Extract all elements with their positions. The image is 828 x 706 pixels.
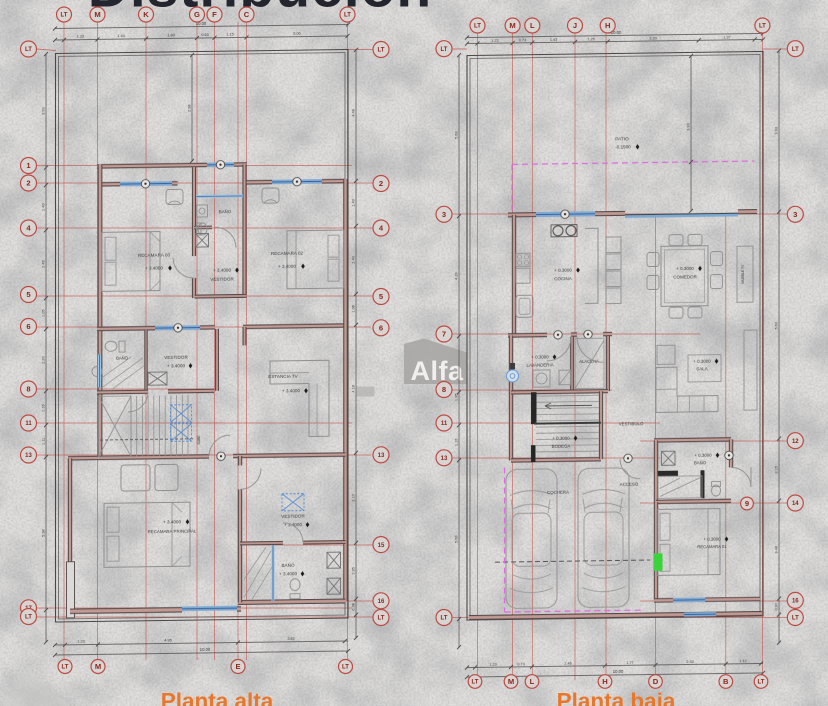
svg-text:SALA: SALA xyxy=(696,366,708,371)
svg-text:+ 3.4000: + 3.4000 xyxy=(163,519,181,524)
svg-text:1.23: 1.23 xyxy=(491,38,498,42)
svg-text:Planta baja: Planta baja xyxy=(557,689,676,706)
svg-text:1.12: 1.12 xyxy=(739,659,746,663)
svg-text:H: H xyxy=(605,21,610,30)
svg-text:2.40: 2.40 xyxy=(352,256,356,263)
svg-text:0.73: 0.73 xyxy=(519,38,526,42)
svg-text:1.40: 1.40 xyxy=(352,199,356,206)
svg-text:1.23: 1.23 xyxy=(77,640,84,644)
svg-text:4.20: 4.20 xyxy=(455,272,459,279)
svg-text:LT: LT xyxy=(792,616,799,622)
svg-text:5.38: 5.38 xyxy=(42,529,46,536)
svg-text:2.15: 2.15 xyxy=(775,466,779,473)
svg-text:0.38: 0.38 xyxy=(352,603,356,610)
svg-text:M: M xyxy=(94,10,100,19)
svg-text:LT: LT xyxy=(472,680,479,686)
svg-text:+ 0.3000: + 0.3000 xyxy=(693,359,711,364)
svg-text:BAÑO: BAÑO xyxy=(694,460,707,465)
svg-text:ESTANCIA TV: ESTANCIA TV xyxy=(268,374,298,379)
svg-text:VESTIDOR: VESTIDOR xyxy=(281,514,305,519)
svg-text:+ 0.3000: + 0.3000 xyxy=(531,354,549,359)
svg-text:F: F xyxy=(212,10,217,19)
svg-text:BODEGA: BODEGA xyxy=(552,444,571,449)
svg-text:7: 7 xyxy=(442,330,446,339)
svg-text:3.93: 3.93 xyxy=(775,127,779,134)
svg-text:RECAMARA 01: RECAMARA 01 xyxy=(697,544,727,549)
svg-text:3.93: 3.93 xyxy=(42,107,46,114)
svg-text:LT: LT xyxy=(344,13,351,19)
svg-text:BAÑO: BAÑO xyxy=(219,209,232,214)
svg-text:B: B xyxy=(723,677,729,686)
svg-text:11: 11 xyxy=(25,421,32,427)
svg-text:1.43: 1.43 xyxy=(550,38,557,42)
svg-text:1.43: 1.43 xyxy=(117,34,124,38)
svg-text:VESTIDOR: VESTIDOR xyxy=(164,355,188,360)
svg-text:ACCESO: ACCESO xyxy=(620,482,639,487)
svg-text:LT: LT xyxy=(792,47,799,53)
svg-text:C: C xyxy=(244,10,250,19)
svg-text:9: 9 xyxy=(745,499,749,508)
svg-text:5.63: 5.63 xyxy=(455,131,459,138)
svg-text:3: 3 xyxy=(793,210,797,219)
svg-text:2.46: 2.46 xyxy=(564,661,571,665)
svg-text:+ 3.4000: + 3.4000 xyxy=(167,363,185,368)
svg-text:2.20: 2.20 xyxy=(42,356,46,363)
svg-text:LT: LT xyxy=(378,48,385,54)
svg-text:1.22: 1.22 xyxy=(77,35,84,39)
svg-text:+ 0.3000: + 0.3000 xyxy=(552,436,570,441)
svg-text:15: 15 xyxy=(378,543,385,549)
svg-text:5.60: 5.60 xyxy=(775,322,779,329)
svg-text:8: 8 xyxy=(442,385,446,394)
svg-text:3.10: 3.10 xyxy=(352,494,356,501)
svg-text:+ 0.3000: + 0.3000 xyxy=(703,537,721,542)
svg-text:8: 8 xyxy=(26,385,30,394)
svg-text:COCINA: COCINA xyxy=(554,276,572,281)
svg-text:1.77: 1.77 xyxy=(626,661,633,665)
svg-text:3.93: 3.93 xyxy=(687,123,691,130)
svg-text:LT: LT xyxy=(342,665,349,671)
svg-text:3.82: 3.82 xyxy=(287,637,294,641)
svg-text:D: D xyxy=(653,677,659,686)
svg-text:K: K xyxy=(143,10,149,19)
svg-text:VESTIBULO: VESTIBULO xyxy=(619,421,644,426)
svg-text:J: J xyxy=(573,21,577,30)
svg-text:3.48: 3.48 xyxy=(775,546,779,553)
svg-text:1.80: 1.80 xyxy=(167,34,174,38)
svg-text:1.16: 1.16 xyxy=(455,438,459,445)
svg-text:6: 6 xyxy=(26,322,30,331)
svg-text:L: L xyxy=(530,677,535,686)
svg-text:12: 12 xyxy=(792,439,799,445)
svg-text:BAÑO: BAÑO xyxy=(116,355,129,360)
svg-text:RECAMARA 03: RECAMARA 03 xyxy=(138,252,171,257)
svg-text:1.16: 1.16 xyxy=(42,404,46,411)
svg-text:M: M xyxy=(509,21,515,30)
svg-text:0.63: 0.63 xyxy=(201,33,208,37)
svg-text:RECAMARA PRINCIPAL: RECAMARA PRINCIPAL xyxy=(148,529,197,535)
svg-text:LT: LT xyxy=(61,13,68,19)
svg-text:LAVANDERIA: LAVANDERIA xyxy=(526,362,553,367)
svg-text:VESTIDOR: VESTIDOR xyxy=(210,277,234,282)
svg-text:COCHERA: COCHERA xyxy=(547,490,569,495)
svg-text:PATIO: PATIO xyxy=(615,136,629,142)
svg-text:0.97: 0.97 xyxy=(775,603,779,610)
svg-text:1.15: 1.15 xyxy=(226,33,233,37)
svg-text:1.97: 1.97 xyxy=(723,35,730,39)
svg-text:LT: LT xyxy=(378,616,385,622)
svg-text:SUBE: SUBE xyxy=(197,435,201,445)
svg-text:H: H xyxy=(602,677,607,686)
svg-text:4.18: 4.18 xyxy=(352,385,356,392)
svg-text:1.25: 1.25 xyxy=(587,37,594,41)
svg-text:+ 3.4000: + 3.4000 xyxy=(145,266,163,271)
svg-text:+ 0.3000: + 0.3000 xyxy=(554,268,572,273)
svg-text:BAÑO: BAÑO xyxy=(281,562,294,568)
svg-text:5.60: 5.60 xyxy=(455,535,459,542)
svg-text:13: 13 xyxy=(441,456,448,462)
svg-text:+ 3.4000: + 3.4000 xyxy=(279,571,297,576)
svg-text:L: L xyxy=(530,21,535,30)
svg-text:LT: LT xyxy=(62,665,69,671)
svg-text:+ 3.4000: + 3.4000 xyxy=(213,268,231,273)
svg-text:+ 0.3000: + 0.3000 xyxy=(676,266,694,271)
svg-text:14: 14 xyxy=(792,501,799,507)
svg-text:LT: LT xyxy=(25,47,32,53)
svg-text:1.95: 1.95 xyxy=(352,567,356,574)
svg-text:2.33: 2.33 xyxy=(686,660,693,664)
svg-text:+ 0.3000: + 0.3000 xyxy=(694,453,712,458)
svg-text:+ 3.4000: + 3.4000 xyxy=(282,388,300,393)
svg-text:1.95: 1.95 xyxy=(455,393,459,400)
svg-text:1.05: 1.05 xyxy=(42,309,46,316)
svg-text:13: 13 xyxy=(25,453,32,459)
svg-text:LT: LT xyxy=(441,47,448,53)
svg-text:Alfa: Alfa xyxy=(410,356,463,386)
svg-text:3.20: 3.20 xyxy=(649,36,656,40)
svg-text:1.23: 1.23 xyxy=(489,662,496,666)
svg-text:6: 6 xyxy=(379,324,383,333)
svg-text:2.98: 2.98 xyxy=(188,104,192,111)
svg-text:2: 2 xyxy=(26,179,30,188)
svg-text:2.43: 2.43 xyxy=(42,260,46,267)
svg-text:LT: LT xyxy=(758,680,765,686)
svg-text:RECAMARA 02: RECAMARA 02 xyxy=(271,251,304,256)
svg-text:LT: LT xyxy=(474,24,481,30)
svg-text:10.00: 10.00 xyxy=(200,647,211,652)
svg-text:13: 13 xyxy=(378,453,385,459)
svg-text:16: 16 xyxy=(378,599,385,605)
svg-text:LT: LT xyxy=(441,616,448,622)
svg-text:-0.1500: -0.1500 xyxy=(615,144,631,149)
svg-text:4.95: 4.95 xyxy=(164,639,171,643)
svg-text:10.00: 10.00 xyxy=(613,669,624,674)
svg-text:0.73: 0.73 xyxy=(517,662,524,666)
svg-text:M: M xyxy=(95,662,101,671)
svg-text:G: G xyxy=(194,10,200,19)
svg-text:3: 3 xyxy=(442,210,446,219)
svg-text:E: E xyxy=(235,662,240,671)
svg-text:LT: LT xyxy=(759,24,766,30)
svg-text:+ 3.4000: + 3.4000 xyxy=(278,264,296,269)
svg-text:5.00: 5.00 xyxy=(293,32,300,36)
svg-text:LT: LT xyxy=(25,615,32,621)
svg-text:COMEDOR: COMEDOR xyxy=(673,274,697,279)
svg-text:16: 16 xyxy=(792,599,799,605)
svg-text:1.08: 1.08 xyxy=(352,305,356,312)
svg-text:MUEBLE TV: MUEBLE TV xyxy=(741,264,745,284)
svg-text:11: 11 xyxy=(441,421,448,427)
svg-text:2: 2 xyxy=(379,179,383,188)
svg-text:M: M xyxy=(508,677,514,686)
svg-text:1.40: 1.40 xyxy=(42,203,46,210)
svg-text:4.48: 4.48 xyxy=(352,109,356,116)
svg-text:Planta alta: Planta alta xyxy=(161,689,274,706)
svg-text:1.11: 1.11 xyxy=(42,438,46,445)
